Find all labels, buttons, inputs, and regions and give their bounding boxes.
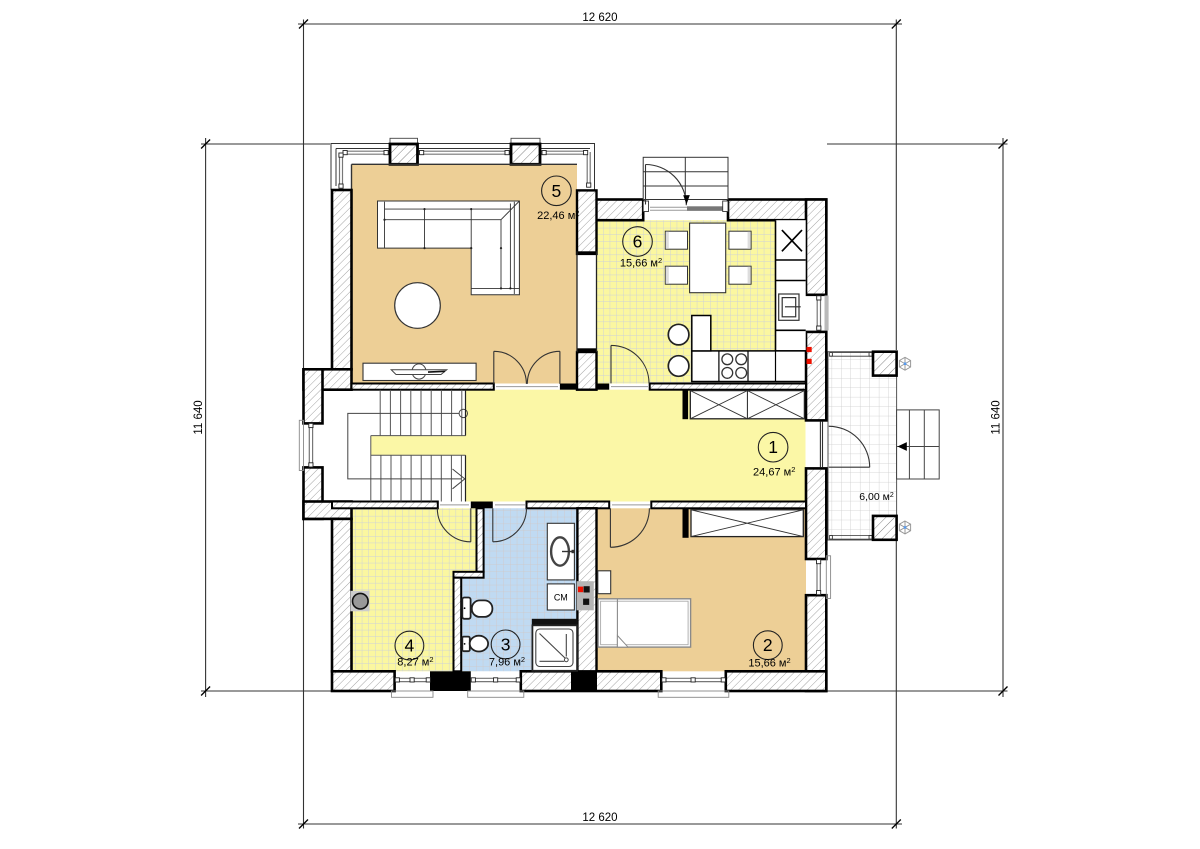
svg-text:4: 4	[405, 636, 415, 656]
svg-text:11 640: 11 640	[991, 400, 1003, 434]
svg-text:6,00 м2: 6,00 м2	[859, 491, 894, 503]
svg-text:15,66 м2: 15,66 м2	[748, 656, 790, 670]
svg-text:1: 1	[768, 437, 778, 457]
svg-text:15,66 м2: 15,66 м2	[620, 256, 662, 270]
svg-text:2: 2	[763, 635, 773, 655]
svg-text:СМ: СМ	[554, 593, 568, 603]
svg-text:3: 3	[501, 634, 511, 654]
svg-text:22,46 м2: 22,46 м2	[537, 208, 579, 222]
svg-text:7,96 м2: 7,96 м2	[489, 655, 525, 669]
svg-text:6: 6	[633, 232, 643, 252]
svg-text:24,67 м2: 24,67 м2	[753, 465, 795, 479]
svg-text:12 620: 12 620	[582, 12, 617, 24]
svg-text:8,27 м2: 8,27 м2	[397, 655, 433, 669]
svg-text:12 620: 12 620	[582, 812, 617, 824]
svg-text:5: 5	[552, 181, 562, 201]
svg-text:11 640: 11 640	[193, 400, 205, 434]
